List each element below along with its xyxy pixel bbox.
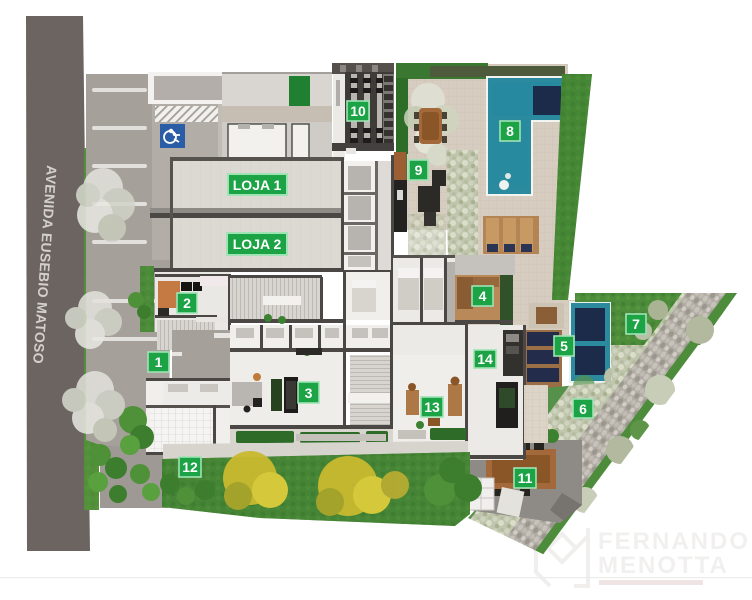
svg-text:LOJA 2: LOJA 2 [233, 236, 282, 252]
svg-text:13: 13 [424, 399, 440, 415]
svg-text:7: 7 [632, 316, 640, 332]
svg-text:FERNANDO: FERNANDO [598, 528, 750, 555]
svg-text:2: 2 [183, 295, 191, 311]
svg-text:12: 12 [182, 459, 198, 475]
svg-text:9: 9 [415, 162, 423, 178]
svg-text:11: 11 [518, 470, 533, 486]
svg-text:5: 5 [560, 338, 568, 354]
svg-text:LOJA 1: LOJA 1 [233, 177, 282, 193]
svg-text:14: 14 [477, 351, 493, 367]
svg-text:6: 6 [579, 401, 587, 417]
svg-text:4: 4 [479, 288, 487, 304]
svg-text:3: 3 [305, 385, 313, 401]
svg-text:MENOTTA: MENOTTA [598, 552, 729, 579]
svg-text:8: 8 [506, 123, 514, 139]
svg-text:10: 10 [350, 103, 366, 119]
svg-text:1: 1 [155, 354, 163, 370]
